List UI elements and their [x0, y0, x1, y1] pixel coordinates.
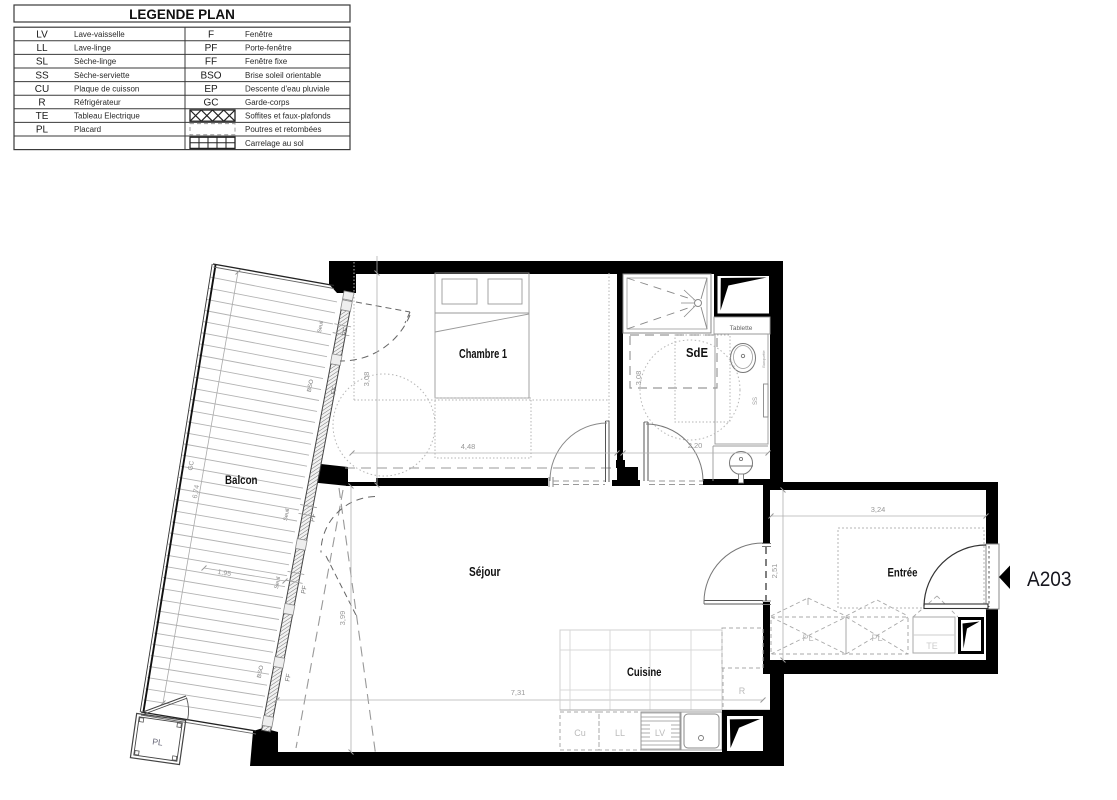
svg-text:SS: SS — [753, 397, 759, 405]
svg-text:LL: LL — [36, 43, 48, 54]
svg-text:Tablette: Tablette — [730, 325, 753, 332]
svg-text:PF: PF — [205, 43, 218, 54]
svg-text:Sèche-linge: Sèche-linge — [74, 57, 117, 66]
svg-text:3,99: 3,99 — [338, 611, 347, 626]
svg-text:2,20: 2,20 — [688, 441, 703, 450]
svg-text:R: R — [739, 686, 746, 696]
svg-text:GC: GC — [204, 98, 219, 109]
svg-text:Sèche-serviette: Sèche-serviette — [74, 71, 130, 80]
svg-text:BSO: BSO — [200, 70, 221, 81]
svg-text:PL: PL — [871, 633, 882, 643]
svg-text:Séjour: Séjour — [469, 565, 501, 579]
svg-text:Tableau Electrique: Tableau Electrique — [74, 112, 140, 121]
svg-text:TE: TE — [926, 641, 938, 651]
svg-text:F: F — [208, 30, 214, 41]
svg-text:3,24: 3,24 — [871, 505, 886, 514]
svg-text:7,31: 7,31 — [511, 688, 526, 697]
svg-text:FF: FF — [284, 673, 292, 682]
svg-text:Porte-fenêtre: Porte-fenêtre — [245, 44, 292, 53]
svg-text:LL: LL — [615, 728, 625, 738]
svg-text:3,08: 3,08 — [634, 371, 643, 386]
svg-text:Carrelage au sol: Carrelage au sol — [245, 139, 304, 148]
svg-text:Cuisine: Cuisine — [627, 665, 662, 679]
svg-text:Réfrigérateur: Réfrigérateur — [74, 98, 121, 107]
svg-text:Cu: Cu — [574, 728, 586, 738]
svg-text:PL: PL — [802, 633, 813, 643]
svg-text:Soffites et faux-plafonds: Soffites et faux-plafonds — [245, 112, 331, 121]
svg-text:Banquette: Banquette — [762, 350, 766, 367]
svg-text:Placard: Placard — [74, 125, 101, 134]
svg-text:Fenêtre: Fenêtre — [245, 30, 273, 39]
svg-text:Descente d'eau pluviale: Descente d'eau pluviale — [245, 84, 330, 93]
svg-text:PL: PL — [36, 125, 49, 136]
svg-text:A203: A203 — [1027, 568, 1072, 591]
svg-text:EP: EP — [204, 84, 218, 95]
svg-text:4,48: 4,48 — [461, 442, 476, 451]
svg-text:Entrée: Entrée — [888, 566, 918, 580]
svg-text:LV: LV — [36, 30, 48, 41]
svg-text:TE: TE — [36, 111, 49, 122]
svg-text:Balcon: Balcon — [225, 473, 258, 487]
svg-text:Plaque de cuisson: Plaque de cuisson — [74, 84, 139, 93]
svg-text:Brise soleil orientable: Brise soleil orientable — [245, 71, 322, 80]
svg-text:FF: FF — [205, 57, 217, 68]
svg-text:Lave-linge: Lave-linge — [74, 44, 111, 53]
svg-text:Fenêtre fixe: Fenêtre fixe — [245, 57, 288, 66]
svg-text:2,51: 2,51 — [770, 564, 779, 579]
svg-text:3,08: 3,08 — [362, 372, 371, 387]
svg-text:CU: CU — [35, 84, 49, 95]
svg-text:R: R — [38, 98, 45, 109]
svg-text:Poutres et retombées: Poutres et retombées — [245, 125, 321, 134]
svg-text:SS: SS — [35, 70, 49, 81]
svg-text:LV: LV — [655, 728, 665, 738]
svg-text:SdE: SdE — [686, 346, 708, 360]
svg-text:Chambre 1: Chambre 1 — [459, 347, 507, 361]
svg-text:FF: FF — [330, 386, 338, 395]
svg-text:SL: SL — [36, 57, 49, 68]
svg-text:Garde-corps: Garde-corps — [245, 98, 289, 107]
svg-text:PL: PL — [152, 736, 164, 747]
svg-text:Lave-vaisselle: Lave-vaisselle — [74, 30, 125, 39]
svg-text:LEGENDE PLAN: LEGENDE PLAN — [129, 7, 235, 22]
